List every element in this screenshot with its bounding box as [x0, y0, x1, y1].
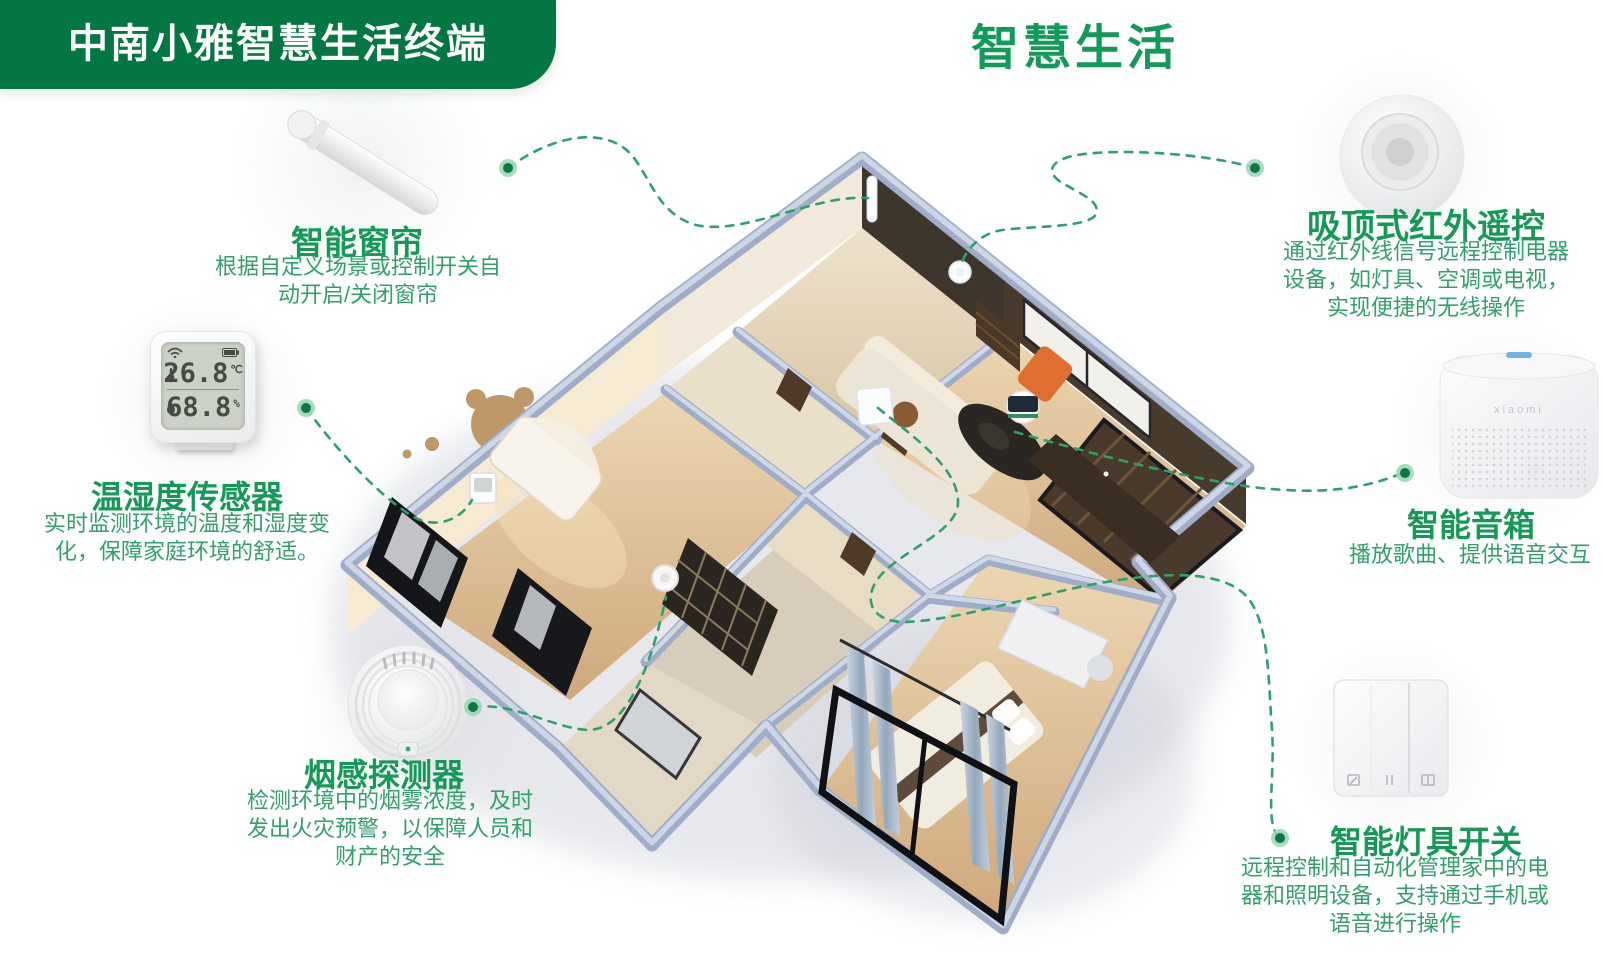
humidity-unit: % — [233, 397, 240, 410]
speaker-grille — [1452, 428, 1586, 492]
dot-temp — [297, 399, 315, 417]
speaker-title: 智能音箱 — [1388, 500, 1554, 546]
robot-speaker-installed — [1007, 391, 1039, 423]
smoke-desc: 检测环境中的烟雾浓度，及时发出火灾预警，以保障人员和财产的安全 — [244, 787, 536, 871]
connector-ir — [960, 152, 1255, 268]
sensor-lcd: 26.8℃ 68.8% — [161, 342, 245, 430]
thermometer-icon — [166, 367, 176, 381]
temperature-unit: ℃ — [230, 363, 242, 376]
curtain-desc: 根据自定义场景或控制开关自动开启/关闭窗帘 — [212, 253, 504, 309]
bedside-lamp — [1087, 655, 1113, 681]
dot-speaker — [1396, 464, 1414, 482]
banner-title: 中南小雅智慧生活终端 — [0, 0, 556, 89]
speaker-led — [1506, 352, 1532, 358]
dot-curtain — [499, 159, 517, 177]
temp-sensor-installed — [470, 473, 496, 503]
smart-speaker-figure: xiaomi — [1440, 352, 1598, 498]
light-switch-figure — [1334, 680, 1448, 796]
temp-sensor-figure: 26.8℃ 68.8% — [150, 331, 256, 443]
wall-switch-installed — [856, 387, 893, 426]
speaker-brand: xiaomi — [1494, 404, 1544, 416]
speaker-desc: 播放歌曲、提供语音交互 — [1324, 541, 1603, 569]
page-title: 智慧生活 — [930, 8, 1220, 78]
smoke-detector-figure — [348, 645, 468, 765]
light-switch-desc: 远程控制和自动化管理家中的电器和照明设备，支持通过手机或语音进行操作 — [1240, 854, 1550, 938]
smart-home-infographic: { "banner": { "label": "中南小雅智慧生活终端" }, "… — [0, 0, 1603, 954]
temp-sensor-desc: 实时监测环境的温度和湿度变化，保障家庭环境的舒适。 — [44, 510, 330, 566]
dot-ir — [1246, 159, 1264, 177]
banner: 中南小雅智慧生活终端 — [0, 0, 556, 89]
droplet-icon — [166, 401, 176, 414]
battery-icon — [222, 348, 239, 357]
dot-switch — [1271, 829, 1289, 847]
dot-smoke — [464, 698, 482, 716]
wifi-icon — [167, 347, 183, 358]
curtain-motor-figure — [281, 104, 444, 222]
ir-remote-desc: 通过红外线信号远程控制电器设备，如灯具、空调或电视，实现便捷的无线操作 — [1280, 238, 1572, 322]
